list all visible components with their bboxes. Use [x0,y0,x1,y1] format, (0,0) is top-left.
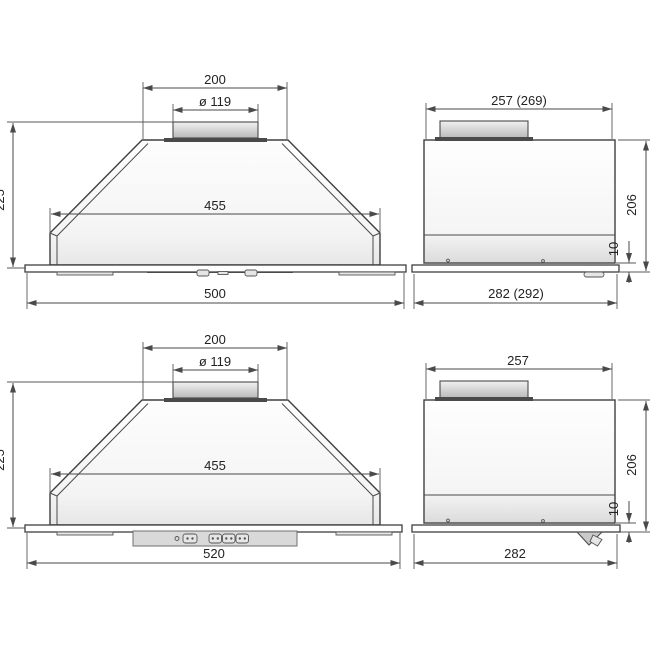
cooker-hood-dimension-drawing: 200 ø 119 455 225 500 257 (269) 206 10 2… [0,0,650,650]
underside-lamp [577,532,602,546]
dim-label-inner-width: 455 [204,458,226,473]
front-view-model-520: 200 ø 119 455 225 520 [0,332,402,569]
dim-label-depth-top: 257 (269) [491,93,547,108]
bottom-plate [412,265,619,272]
dim-label-top-width: 200 [204,332,226,347]
dim-label-overall-width: 500 [204,286,226,301]
speed-button-2 [223,534,236,543]
dim-label-depth-top: 257 [507,353,529,368]
side-view-model-520: 257 206 10 282 [412,353,650,569]
dim-label-depth-overall: 282 [504,546,526,561]
technical-drawing-page: 200 ø 119 455 225 500 257 (269) 206 10 2… [0,0,650,650]
dim-label-bottom-gap: 10 [606,502,621,516]
dim-label-depth-overall: 282 (292) [488,286,544,301]
dim-label-body-height: 206 [624,194,639,216]
speed-button-1 [209,534,222,543]
control-panel [133,531,297,546]
underside-tab [584,272,604,277]
bottom-plate [25,265,406,272]
dim-label-bottom-gap: 10 [606,242,621,256]
dim-label-overall-width: 520 [203,546,225,561]
light-button [183,534,197,543]
bottom-plate [412,525,620,532]
dim-label-height: 225 [0,189,7,211]
dim-label-duct-diameter: ø 119 [199,354,231,369]
side-view-model-500: 257 (269) 206 10 282 (292) [412,93,650,309]
dim-label-inner-width: 455 [204,198,226,213]
speed-button-3 [236,534,249,543]
dim-label-duct-diameter: ø 119 [199,94,231,109]
slider-knob [245,270,257,276]
slider-knob [197,270,209,276]
dim-label-height: 225 [0,449,7,471]
front-view-model-500: 200 ø 119 455 225 500 [0,72,406,309]
dim-label-top-width: 200 [204,72,226,87]
dim-label-body-height: 206 [624,454,639,476]
